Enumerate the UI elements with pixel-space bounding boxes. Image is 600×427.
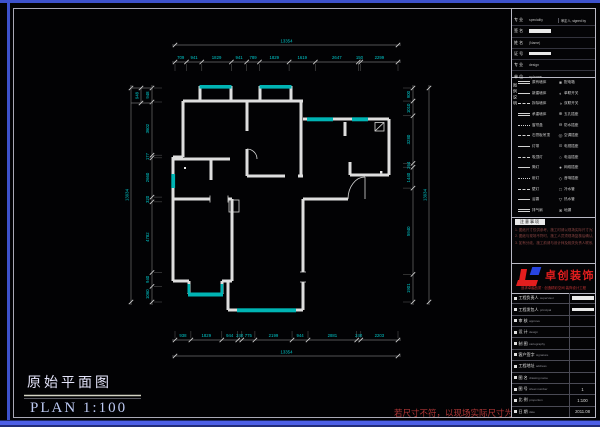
svg-text:13354: 13354 bbox=[281, 350, 294, 355]
row-bullet-icon bbox=[514, 388, 517, 391]
cad-drawing-canvas[interactable]: 7099411829941789182916192647150229993818… bbox=[0, 0, 600, 427]
info-row: 专 业design bbox=[512, 60, 595, 71]
svg-text:240: 240 bbox=[355, 333, 363, 338]
legend-item-label: 石膏板吊顶 bbox=[532, 133, 557, 138]
value-blob bbox=[572, 308, 594, 312]
company-name: 卓创装饰 bbox=[545, 267, 595, 283]
company-logo-icon bbox=[516, 267, 542, 287]
row-bullet-icon bbox=[514, 319, 517, 322]
company-logo-section: 卓创装饰 追求卓越品质 · 创造精彩空间 装饰设计工程 bbox=[512, 263, 595, 294]
legend-row: 拆除墙体◑双联开关 bbox=[518, 98, 595, 109]
svg-text:3602: 3602 bbox=[145, 123, 150, 133]
disclaimer-text: 若尺寸不符，以现场实际尺寸为准 bbox=[394, 407, 522, 419]
sheet-info-row: 日 期date2011.08 bbox=[512, 407, 595, 417]
legend-item-label-2: 地漏 bbox=[564, 208, 594, 213]
legend-linetype-sample bbox=[518, 81, 530, 84]
legend-item-label: 壁灯 bbox=[532, 187, 557, 192]
row-bullet-icon bbox=[514, 410, 517, 413]
legend-item-label-2: 电视插座 bbox=[564, 144, 594, 149]
sheet-info-row: 客户签字signature bbox=[512, 350, 595, 361]
row-sublabel: approve bbox=[529, 319, 569, 323]
svg-text:948: 948 bbox=[145, 91, 150, 99]
svg-text:320: 320 bbox=[145, 195, 150, 203]
svg-text:1829: 1829 bbox=[270, 55, 280, 60]
legend-row: 壁灯□冷水管 bbox=[518, 184, 595, 195]
row-sublabel: proportion bbox=[529, 398, 569, 402]
row-bullet-icon bbox=[514, 399, 517, 402]
door-jambs bbox=[210, 196, 306, 283]
info-row-right: 审定人, signed by bbox=[558, 18, 593, 23]
drawing-title-cn: 原始平面图 bbox=[27, 372, 112, 392]
legend-symbol-icon: ■ bbox=[557, 80, 564, 85]
doors-and-details bbox=[210, 123, 384, 283]
legend-linetype-sample bbox=[518, 103, 530, 104]
legend-item-label: 筒灯 bbox=[532, 165, 557, 170]
legend-item-label-2: 网络插座 bbox=[564, 165, 594, 170]
svg-text:13934: 13934 bbox=[125, 188, 130, 201]
svg-text:5940: 5940 bbox=[406, 226, 411, 236]
legend-item-label-2: 热水管 bbox=[564, 197, 594, 202]
legend-item-label-2: 五孔插座 bbox=[564, 112, 594, 117]
legend-item-label: 吸顶灯 bbox=[532, 155, 557, 160]
row-bullet-icon bbox=[514, 297, 517, 300]
legend-item-label: 承重墙体 bbox=[532, 112, 557, 117]
row-sublabel: supervisor bbox=[540, 296, 569, 300]
svg-text:177: 177 bbox=[145, 152, 150, 160]
row-label: 工程地址 bbox=[519, 363, 535, 369]
row-bullet-icon bbox=[514, 342, 517, 345]
row-label: 审 核 bbox=[519, 318, 528, 324]
row-sublabel: cartography bbox=[529, 342, 569, 346]
viewport-border-left bbox=[7, 0, 10, 427]
sheet-info-row: 图 号sheet number1 bbox=[512, 384, 595, 395]
legend-item-label: 原有墙体 bbox=[532, 80, 557, 85]
legend-symbol-icon: ◇ bbox=[557, 176, 564, 182]
legend-symbol-icon: ◎ bbox=[557, 133, 564, 139]
row-value bbox=[569, 361, 595, 371]
signature-blob bbox=[529, 29, 551, 33]
svg-text:1829: 1829 bbox=[212, 55, 222, 60]
legend-linetype-sample bbox=[518, 167, 530, 168]
info-row-value: (Name) bbox=[529, 41, 593, 45]
svg-text:13934: 13934 bbox=[423, 188, 428, 201]
legend-row: 承重墙体⊕五孔插座 bbox=[518, 109, 595, 120]
legend-linetype-sample bbox=[518, 157, 530, 158]
legend-row: 石膏板吊顶◎空调插座 bbox=[518, 130, 595, 141]
row-sublabel: address bbox=[536, 364, 569, 368]
svg-text:2647: 2647 bbox=[332, 55, 342, 60]
sheet-info-table: 工程负责人supervisor工程发包人principal审 核approve设… bbox=[512, 293, 595, 417]
title-underline bbox=[24, 396, 141, 399]
svg-text:789: 789 bbox=[249, 55, 257, 60]
row-value: 1 bbox=[569, 384, 595, 394]
row-value bbox=[569, 350, 595, 360]
row-label: 工程发包人 bbox=[519, 307, 539, 313]
legend-item-label-2: 电话插座 bbox=[564, 155, 594, 160]
legend-item-label-2: 音响插座 bbox=[564, 176, 594, 181]
row-value bbox=[569, 327, 595, 337]
value-blob bbox=[572, 296, 594, 300]
info-row-value: design bbox=[529, 63, 593, 67]
svg-text:940: 940 bbox=[145, 275, 150, 283]
info-row-value bbox=[529, 29, 593, 34]
svg-text:240: 240 bbox=[236, 333, 244, 338]
svg-text:948: 948 bbox=[135, 91, 140, 99]
svg-text:3280: 3280 bbox=[406, 134, 411, 144]
legend-row: 筒灯●网络插座 bbox=[518, 163, 595, 174]
row-value bbox=[569, 338, 595, 348]
legend-item-label: 射灯 bbox=[532, 176, 557, 181]
note-line: 2. 图纸与现场不符时，施工人员须现场复核后确认。 bbox=[515, 233, 593, 239]
info-row: 签 名 bbox=[512, 26, 595, 37]
row-sublabel: design bbox=[529, 330, 569, 334]
legend-item-label-2: 空调插座 bbox=[564, 133, 594, 138]
svg-text:1619: 1619 bbox=[297, 55, 307, 60]
row-sublabel: sheet number bbox=[529, 387, 569, 391]
row-label: 图 名 bbox=[519, 375, 528, 381]
svg-text:2881: 2881 bbox=[328, 333, 338, 338]
row-value bbox=[569, 304, 595, 314]
svg-text:938: 938 bbox=[179, 333, 187, 338]
sheet-info-row: 工程地址address bbox=[512, 361, 595, 372]
legend-linetype-sample bbox=[518, 189, 530, 190]
legend-item-label: 新建墙体 bbox=[532, 91, 557, 96]
row-sublabel: signature bbox=[536, 353, 569, 357]
svg-text:2299: 2299 bbox=[375, 55, 385, 60]
svg-text:4782: 4782 bbox=[145, 232, 150, 242]
signature-blob bbox=[529, 52, 551, 56]
legend-row: 窗帘盒⊖防水插座 bbox=[518, 120, 595, 131]
info-row-label: 姓 名 bbox=[514, 40, 529, 46]
legend-linetype-sample bbox=[518, 93, 530, 94]
notes-section: 注意事项 1. 图纸尺寸仅供参考，施工时请以现场实际尺寸为准。2. 图纸与现场不… bbox=[512, 217, 595, 264]
row-label: 比 例 bbox=[519, 397, 528, 403]
sheet-info-row: 比 例proportion1:100 bbox=[512, 395, 595, 406]
row-value: 1:100 bbox=[569, 395, 595, 405]
row-bullet-icon bbox=[514, 308, 517, 311]
legend-symbol-icon: ● bbox=[557, 165, 564, 170]
info-row: 姓 名(Name) bbox=[512, 38, 595, 49]
legend-row: 射灯◇音响插座 bbox=[518, 173, 595, 184]
svg-text:944: 944 bbox=[296, 333, 304, 338]
legend-row: 吸顶灯○电话插座 bbox=[518, 152, 595, 163]
sheet-info-row: 制 图cartography bbox=[512, 338, 595, 349]
info-row-label: 证 号 bbox=[514, 51, 529, 57]
legend-linetype-sample bbox=[518, 135, 530, 136]
sheet-info-row: 图 名drawing name bbox=[512, 373, 595, 384]
legend-symbol-icon: ○ bbox=[557, 155, 564, 160]
row-value bbox=[569, 373, 595, 383]
company-tagline: 追求卓越品质 · 创造精彩空间 装饰设计工程 bbox=[513, 285, 594, 290]
sheet-info-row: 工程负责人supervisor bbox=[512, 293, 595, 304]
info-row-label: 签 名 bbox=[514, 28, 529, 34]
legend-item-label: 灯带 bbox=[532, 144, 557, 149]
sheet-info-row: 设 计design bbox=[512, 327, 595, 338]
legend-symbol-icon: □ bbox=[557, 187, 564, 192]
legend-item-label-2: 冷水管 bbox=[564, 187, 594, 192]
viewport-border-top bbox=[0, 0, 600, 3]
legend-linetype-sample bbox=[518, 178, 530, 179]
info-row-label: 专 业 bbox=[514, 17, 529, 23]
sheet-info-row: 工程发包人principal bbox=[512, 304, 595, 315]
legend-item-label: 拆除墙体 bbox=[532, 101, 557, 106]
row-label: 设 计 bbox=[519, 329, 528, 335]
info-row-value bbox=[529, 52, 593, 57]
row-bullet-icon bbox=[514, 331, 517, 334]
legend-item-label-2: 单联开关 bbox=[564, 91, 594, 96]
row-sublabel: principal bbox=[540, 308, 569, 312]
sheet-info-row: 审 核approve bbox=[512, 316, 595, 327]
svg-text:1829: 1829 bbox=[202, 333, 212, 338]
title-block: 专 业speciality审定人, signed by签 名姓 名(Name)证… bbox=[511, 8, 596, 418]
info-row: 专 业speciality审定人, signed by bbox=[512, 15, 595, 26]
legend-symbol-icon: ◐ bbox=[557, 91, 564, 96]
legend-symbol-icon: ⊕ bbox=[557, 111, 564, 117]
svg-text:1901: 1901 bbox=[406, 283, 411, 293]
svg-text:1060: 1060 bbox=[145, 289, 150, 299]
legend-item-label-2: 双联开关 bbox=[564, 101, 594, 106]
svg-text:941: 941 bbox=[235, 55, 243, 60]
legend-row: 排气扇⊗地漏 bbox=[518, 205, 595, 216]
legend-row: 浴霸▽热水管 bbox=[518, 195, 595, 206]
svg-text:2203: 2203 bbox=[375, 333, 385, 338]
row-label: 日 期 bbox=[519, 409, 528, 415]
floor-plan-svg: 7099411829941789182916192647150229993818… bbox=[0, 0, 600, 427]
svg-text:709: 709 bbox=[177, 55, 185, 60]
plan-dots bbox=[184, 167, 382, 173]
info-row: 证 号 bbox=[512, 49, 595, 60]
svg-text:264: 264 bbox=[406, 161, 411, 169]
svg-text:944: 944 bbox=[226, 333, 234, 338]
row-label: 图 号 bbox=[519, 386, 528, 392]
legend-item-label: 窗帘盒 bbox=[532, 123, 557, 128]
drawing-title-scale: PLAN 1:100 bbox=[30, 400, 127, 417]
row-bullet-icon bbox=[514, 353, 517, 356]
approval-info-table: 专 业speciality审定人, signed by签 名姓 名(Name)证… bbox=[512, 15, 595, 78]
legend-row: 新建墙体◐单联开关 bbox=[518, 88, 595, 99]
door-swing-arc bbox=[348, 177, 365, 199]
row-value bbox=[569, 293, 595, 303]
row-bullet-icon bbox=[514, 365, 517, 368]
row-value: 2011.08 bbox=[569, 407, 595, 417]
legend-symbol-icon: ◑ bbox=[557, 101, 564, 106]
legend-item-label: 排气扇 bbox=[532, 208, 557, 213]
row-label: 制 图 bbox=[519, 341, 528, 347]
svg-text:900: 900 bbox=[406, 90, 411, 98]
row-label: 客户签字 bbox=[519, 352, 535, 358]
row-sublabel: date bbox=[529, 410, 569, 414]
legend-symbol-icon: ⊗ bbox=[557, 208, 564, 214]
row-label: 工程负责人 bbox=[519, 295, 539, 301]
legend-linetype-sample bbox=[518, 125, 530, 126]
legend-table: 原有墙体■配电箱新建墙体◐单联开关拆除墙体◑双联开关承重墙体⊕五孔插座窗帘盒⊖防… bbox=[512, 77, 595, 218]
legend-row: 原有墙体■配电箱 bbox=[518, 77, 595, 88]
notes-list: 1. 图纸尺寸仅供参考，施工时请以现场实际尺寸为准。2. 图纸与现场不符时，施工… bbox=[515, 227, 593, 246]
svg-text:775: 775 bbox=[245, 333, 253, 338]
svg-text:150: 150 bbox=[356, 55, 364, 60]
legend-linetype-sample bbox=[518, 209, 530, 212]
legend-linetype-sample bbox=[518, 199, 530, 200]
legend-symbol-icon: ⊖ bbox=[557, 122, 564, 128]
notes-header: 注意事项 bbox=[515, 219, 545, 225]
legend-row: 灯带⊙电视插座 bbox=[518, 141, 595, 152]
legend-symbol-icon: ⊙ bbox=[557, 143, 564, 149]
svg-text:941: 941 bbox=[191, 55, 199, 60]
svg-text:1440: 1440 bbox=[406, 172, 411, 182]
svg-text:2199: 2199 bbox=[269, 333, 279, 338]
svg-text:1010: 1010 bbox=[406, 103, 411, 113]
row-value bbox=[569, 316, 595, 326]
legend-item-label-2: 配电箱 bbox=[564, 80, 594, 85]
info-row-value: speciality bbox=[529, 18, 558, 22]
legend-item-label: 浴霸 bbox=[532, 197, 557, 202]
svg-text:13354: 13354 bbox=[281, 39, 294, 44]
legend-symbol-icon: ▽ bbox=[557, 197, 564, 203]
row-sublabel: drawing name bbox=[529, 376, 569, 380]
note-line: 3. 如有分歧，施工前请与设计师及相关负责人联系。 bbox=[515, 240, 593, 246]
legend-item-label-2: 防水插座 bbox=[564, 123, 594, 128]
row-bullet-icon bbox=[514, 376, 517, 379]
info-row-label: 专 业 bbox=[514, 62, 529, 68]
legend-linetype-sample bbox=[518, 113, 530, 116]
legend-linetype-sample bbox=[518, 146, 530, 147]
svg-text:2660: 2660 bbox=[145, 172, 150, 182]
